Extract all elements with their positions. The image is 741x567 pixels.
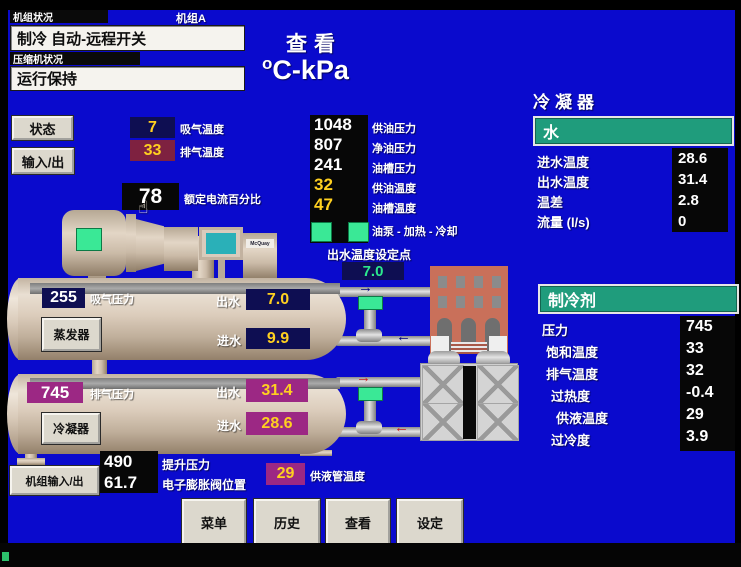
monitor-screen [206, 233, 236, 254]
evap-leaving-value: 7.0 [246, 289, 310, 310]
water-flow-label: 流量 (l/s) [537, 212, 590, 231]
ref-subcool-label: 过冷度 [551, 430, 590, 449]
ref-discharge-temp-value: 32 [680, 360, 735, 382]
cond-leaving-label: 出水 [216, 384, 240, 401]
units-main: C-kPa [272, 55, 349, 85]
ref-sat-temp-value: 33 [680, 338, 735, 360]
cond-valve-indicator [358, 387, 383, 401]
water-delta-value: 2.8 [672, 190, 728, 211]
oil-cooling-indicator [348, 222, 369, 242]
cond-entering-value: 28.6 [246, 412, 308, 435]
cond-pressure-label: 排气压力 [90, 386, 134, 402]
compressor-body [164, 227, 198, 271]
suction-temp-label: 吸气温度 [180, 121, 224, 137]
cond-return-pipe [336, 427, 428, 437]
ref-sat-temp-label: 饱和温度 [546, 342, 598, 361]
ref-liquid-temp-value: 29 [680, 404, 735, 426]
condenser-button[interactable]: 冷凝器 [42, 413, 100, 444]
ref-superheat-label: 过热度 [551, 386, 590, 405]
evaporator-button[interactable]: 蒸发器 [42, 318, 101, 351]
hand-cursor-icon: ☝ [138, 198, 148, 218]
water-values-box: 28.6 31.4 2.8 0 [672, 148, 728, 232]
cond-flow-right-arrow-icon: → [356, 373, 371, 383]
condenser-panel-title: 冷凝器 [533, 88, 599, 113]
evap-return-pipe [336, 336, 434, 346]
water-flow-value: 0 [672, 211, 728, 232]
water-delta-label: 温差 [537, 192, 563, 211]
unit-status-label: 机组状况 [10, 10, 108, 23]
evap-leaving-label: 出水 [216, 293, 240, 310]
compressor-status-value: 运行保持 [10, 66, 245, 91]
refrigerant-header: 制冷剂 [538, 284, 739, 314]
cond-entering-label: 进水 [217, 417, 241, 434]
evap-leaving-pipe [336, 287, 434, 297]
cond-leaving-pipe [336, 377, 428, 387]
water-entering-value: 28.6 [672, 148, 728, 169]
discharge-temp-label: 排气温度 [180, 144, 224, 160]
lift-pressure-value: 490 [100, 451, 158, 472]
setpoint-label: 出水温度设定点 [327, 246, 411, 263]
cond-flow-left-arrow-icon: ← [394, 423, 409, 433]
suction-temp-value: 7 [130, 117, 175, 138]
compressor-status-label: 压缩机状况 [10, 52, 140, 65]
evap-pressure-label: 吸气压力 [90, 291, 134, 307]
lift-pressure-label: 提升压力 [162, 456, 210, 473]
current-pct-label: 额定电流百分比 [184, 191, 261, 207]
setpoint-value: 7.0 [342, 262, 404, 280]
units-title: oC-kPa [262, 54, 349, 86]
oil-pump-heat-cool-label: 油泵 - 加热 - 冷却 [372, 223, 458, 239]
compressor-run-indicator [76, 228, 102, 251]
eev-position-label: 电子膨胀阀位置 [162, 476, 246, 493]
oil-sump-pressure: 241 [310, 155, 368, 175]
oil-pump-indicator [311, 222, 332, 242]
oil-sump-temp-label: 油槽温度 [372, 200, 416, 216]
evap-entering-value: 9.9 [246, 328, 310, 349]
liquid-temp-value: 29 [266, 463, 305, 485]
ref-liquid-temp-label: 供液温度 [556, 408, 608, 427]
unit-name: 机组A [176, 10, 206, 26]
oil-net-pressure: 807 [310, 135, 368, 155]
ref-superheat-value: -0.4 [680, 382, 735, 404]
evap-flow-right-arrow-icon: → [358, 283, 373, 293]
unit-status-value: 制冷 自动-远程开关 [10, 25, 245, 51]
refrigerant-values-box: 745 33 32 -0.4 29 3.9 [680, 316, 735, 451]
menu-button[interactable]: 菜单 [182, 499, 246, 545]
building-graphic [430, 266, 508, 354]
cooling-tower-graphic [420, 363, 518, 441]
cond-leaving-value: 31.4 [246, 379, 308, 402]
hmi-frame: 机组状况 机组A 制冷 自动-远程开关 压缩机状况 运行保持 查看 oC-kPa… [0, 0, 741, 567]
oil-net-pressure-label: 净油压力 [372, 140, 416, 156]
eev-position-value: 61.7 [100, 472, 158, 493]
cond-pressure-value: 745 [27, 382, 83, 403]
units-sup: o [262, 54, 272, 73]
oil-supply-temp-label: 供油温度 [372, 180, 416, 196]
drain-flange [17, 458, 45, 465]
water-header: 水 [533, 116, 734, 146]
bezel-bottom [0, 543, 741, 567]
monitor [199, 227, 243, 260]
water-leaving-label: 出水温度 [537, 172, 589, 191]
oil-supply-pressure: 1048 [310, 115, 368, 135]
evap-valve-indicator [358, 296, 383, 310]
settings-button[interactable]: 设定 [397, 499, 463, 545]
oil-readings-box: 1048 807 241 32 47 [310, 115, 368, 243]
oil-sump-temp: 47 [310, 195, 368, 215]
power-led [2, 552, 9, 561]
evap-flow-left-arrow-icon: ← [396, 332, 411, 342]
brand-label: McQuay [246, 239, 274, 248]
evap-entering-label: 进水 [217, 332, 241, 349]
evap-pressure-value: 255 [42, 288, 85, 308]
view-button[interactable]: 查看 [326, 499, 390, 545]
io-button[interactable]: 输入/出 [12, 148, 74, 174]
compressor-ring [126, 214, 136, 272]
ref-pressure-value: 745 [680, 316, 735, 338]
compressor-taper [136, 219, 164, 271]
ref-discharge-temp-label: 排气温度 [546, 364, 598, 383]
oil-sump-pressure-label: 油槽压力 [372, 160, 416, 176]
unit-io-button[interactable]: 机组输入/出 [10, 466, 99, 495]
ref-pressure-label: 压力 [542, 320, 568, 339]
control-cabinet: McQuay [243, 233, 277, 279]
history-button[interactable]: 历史 [254, 499, 320, 545]
water-leaving-value: 31.4 [672, 169, 728, 190]
oil-supply-pressure-label: 供油压力 [372, 120, 416, 136]
oil-supply-temp: 32 [310, 175, 368, 195]
status-button[interactable]: 状态 [12, 116, 73, 140]
liquid-temp-label: 供液管温度 [310, 468, 365, 484]
water-entering-label: 进水温度 [537, 152, 589, 171]
discharge-temp-value: 33 [130, 140, 175, 161]
current-pct-value: 78 [122, 183, 179, 210]
ref-subcool-value: 3.9 [680, 426, 735, 448]
evap-valve-body [356, 329, 382, 342]
cond-valve-body [356, 421, 382, 434]
eev-readings-box: 490 61.7 [100, 451, 158, 493]
